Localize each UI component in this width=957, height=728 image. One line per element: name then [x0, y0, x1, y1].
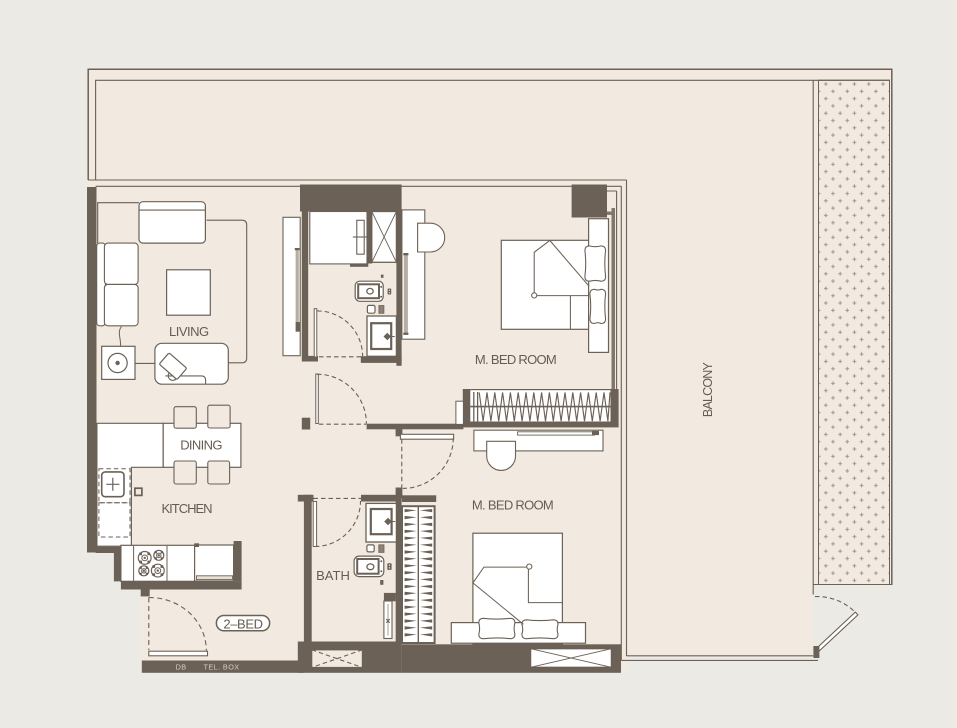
svg-text:DB: DB [176, 663, 187, 672]
svg-text:TEL. BOX: TEL. BOX [204, 663, 240, 672]
svg-text:M. BED ROOM: M. BED ROOM [472, 498, 553, 513]
svg-text:KITCHEN: KITCHEN [161, 501, 212, 516]
svg-text:M. BED ROOM: M. BED ROOM [475, 352, 556, 367]
svg-text:BATH: BATH [316, 568, 350, 583]
svg-text:LIVING: LIVING [169, 324, 209, 339]
svg-text:DINING: DINING [180, 438, 222, 453]
svg-text:BALCONY: BALCONY [701, 361, 715, 417]
svg-text:2–BED: 2–BED [223, 616, 262, 631]
